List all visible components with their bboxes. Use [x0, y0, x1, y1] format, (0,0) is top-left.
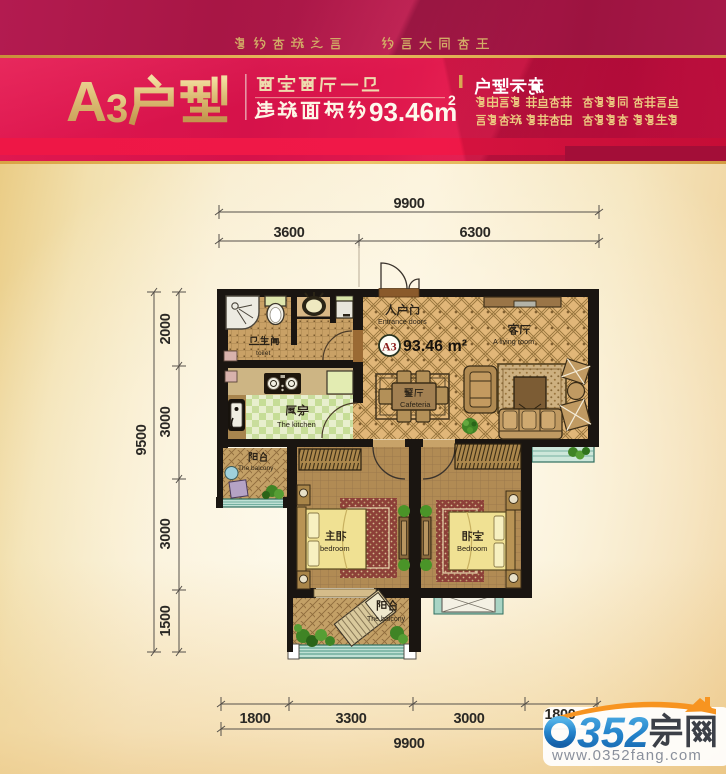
svg-text:Entrance doors: Entrance doors — [378, 317, 427, 326]
svg-text:9900: 9900 — [393, 736, 424, 752]
svg-text:2: 2 — [448, 92, 456, 108]
svg-text:3: 3 — [106, 87, 128, 131]
svg-text:3300: 3300 — [335, 711, 366, 727]
svg-text:9900: 9900 — [393, 196, 424, 212]
svg-text:Bedroom: Bedroom — [457, 544, 487, 553]
svg-text:2000: 2000 — [158, 313, 174, 344]
svg-text:The kitchen: The kitchen — [277, 420, 316, 429]
svg-text:9500: 9500 — [134, 424, 150, 455]
svg-text:3600: 3600 — [273, 225, 304, 241]
svg-text:bedroom: bedroom — [320, 544, 350, 553]
svg-text:3000: 3000 — [158, 406, 174, 437]
svg-text:3000: 3000 — [158, 518, 174, 549]
svg-text:3000: 3000 — [453, 711, 484, 727]
svg-text:93.46m: 93.46m — [369, 97, 457, 127]
svg-text:A3: A3 — [382, 340, 397, 354]
svg-text:6300: 6300 — [459, 225, 490, 241]
svg-text:The balcony: The balcony — [367, 616, 406, 623]
svg-text:1500: 1500 — [158, 605, 174, 636]
svg-text:A living room: A living room — [493, 337, 534, 346]
svg-text:1800: 1800 — [239, 711, 270, 727]
svg-text:toilet: toilet — [256, 350, 270, 357]
svg-text:www.0352fang.com: www.0352fang.com — [551, 747, 702, 764]
svg-text:Cafeteria: Cafeteria — [400, 400, 431, 409]
svg-text:The balcony: The balcony — [238, 465, 274, 472]
svg-text:93.46 m²: 93.46 m² — [403, 338, 467, 355]
svg-text:A: A — [66, 70, 107, 134]
